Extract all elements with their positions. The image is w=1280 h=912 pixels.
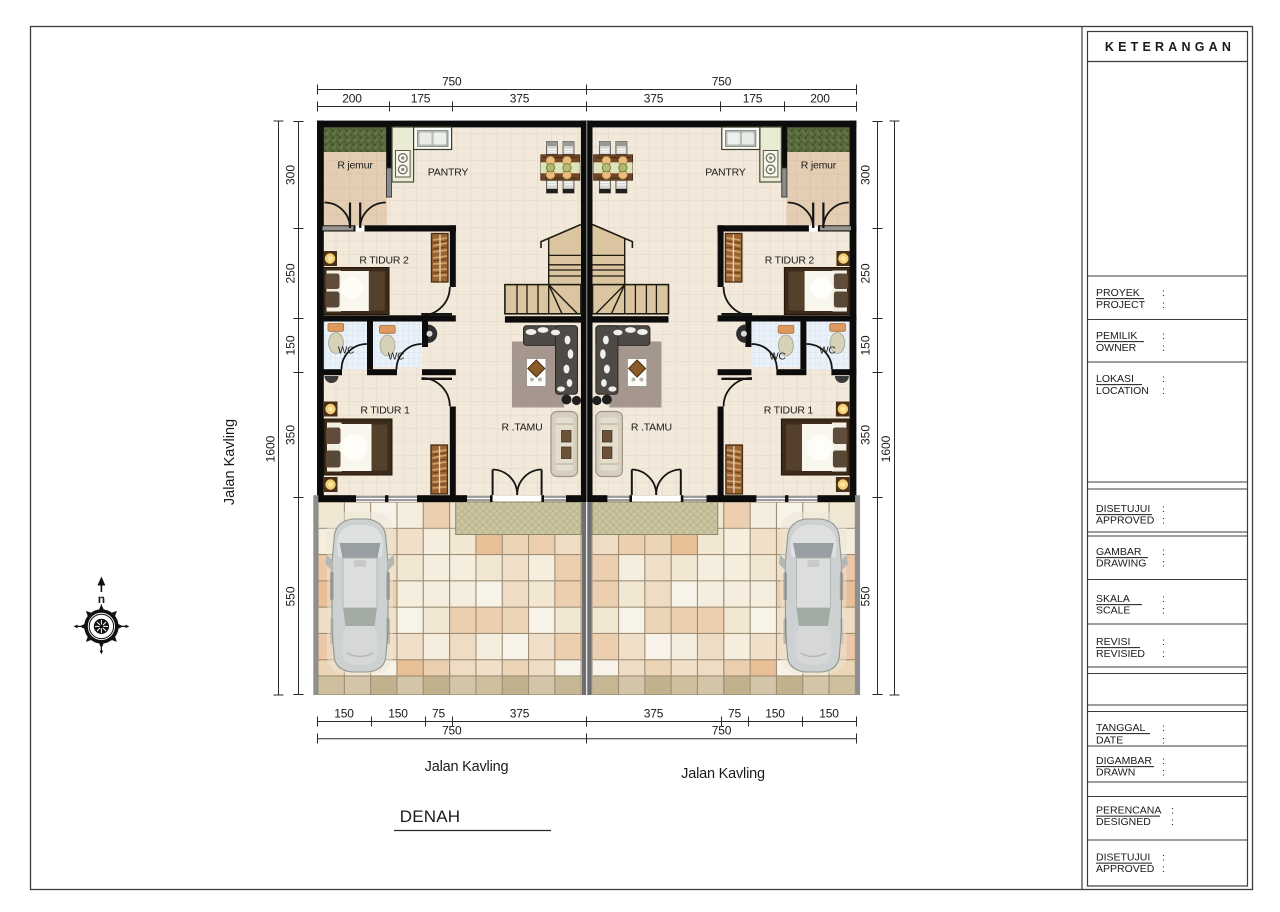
svg-text:DESIGNED: DESIGNED [1096,816,1151,828]
svg-text::: : [1162,722,1165,734]
svg-text::: : [1162,636,1165,648]
svg-text:GAMBAR: GAMBAR [1096,546,1142,558]
svg-text:APPROVED: APPROVED [1096,515,1155,527]
svg-text:PROJECT: PROJECT [1096,299,1146,311]
svg-text:375: 375 [644,92,664,106]
svg-text:DISETUJUI: DISETUJUI [1096,503,1150,515]
svg-text::: : [1162,546,1165,558]
svg-text:150: 150 [765,707,785,721]
svg-text:550: 550 [284,586,298,606]
svg-text:350: 350 [859,425,873,445]
svg-text:SCALE: SCALE [1096,605,1130,617]
svg-text:PERENCANA: PERENCANA [1096,805,1161,817]
svg-text:WC: WC [769,352,785,363]
svg-text::: : [1162,503,1165,515]
svg-text:SKALA: SKALA [1096,593,1130,605]
svg-text::: : [1162,605,1165,617]
svg-text:75: 75 [432,707,445,721]
svg-text:750: 750 [712,75,732,89]
svg-text:DIGAMBAR: DIGAMBAR [1096,755,1152,767]
svg-text::: : [1162,863,1165,875]
svg-text:REVISI: REVISI [1096,636,1130,648]
svg-text:R TIDUR 1: R TIDUR 1 [764,405,814,417]
svg-text:Jalan Kavling: Jalan Kavling [222,419,238,505]
svg-text:300: 300 [284,165,298,185]
svg-text:1600: 1600 [879,435,893,462]
svg-text:n: n [98,592,105,606]
svg-text:WC: WC [388,352,404,363]
svg-text:750: 750 [442,724,462,738]
svg-text:150: 150 [819,707,839,721]
svg-text::: : [1162,558,1165,570]
svg-text:R TIDUR 2: R TIDUR 2 [765,255,815,267]
svg-text:375: 375 [510,707,530,721]
svg-text:175: 175 [743,92,763,106]
svg-text:PANTRY: PANTRY [705,167,746,179]
svg-text:150: 150 [859,335,873,355]
svg-text:R jemur: R jemur [801,160,837,172]
svg-text:TANGGAL: TANGGAL [1096,722,1146,734]
svg-text:550: 550 [859,586,873,606]
svg-text::: : [1162,287,1165,299]
svg-text:750: 750 [712,724,732,738]
svg-text:PEMILIK: PEMILIK [1096,330,1137,342]
svg-text:R .TAMU: R .TAMU [502,422,543,434]
svg-text::: : [1162,385,1165,397]
svg-text::: : [1171,805,1174,817]
svg-text:R TIDUR 1: R TIDUR 1 [360,405,410,417]
svg-text:R jemur: R jemur [337,160,373,172]
svg-text:DISETUJUI: DISETUJUI [1096,852,1150,864]
svg-text:APPROVED: APPROVED [1096,863,1155,875]
svg-text:375: 375 [510,92,530,106]
svg-text:Jalan Kavling: Jalan Kavling [681,766,765,782]
svg-text:LOCATION: LOCATION [1096,385,1149,397]
svg-text::: : [1162,373,1165,385]
svg-text::: : [1171,816,1174,828]
svg-text:250: 250 [859,263,873,283]
svg-text::: : [1162,330,1165,342]
svg-text::: : [1162,593,1165,605]
svg-text::: : [1162,852,1165,864]
svg-text:LOKASI: LOKASI [1096,373,1134,385]
svg-text:1600: 1600 [264,435,278,462]
svg-text:200: 200 [810,92,830,106]
svg-text:OWNER: OWNER [1096,342,1137,354]
svg-text:75: 75 [728,707,741,721]
svg-text::: : [1162,342,1165,354]
svg-text:DENAH: DENAH [400,807,461,826]
svg-text:DATE: DATE [1096,735,1123,747]
svg-text:PANTRY: PANTRY [428,167,469,179]
svg-text:R .TAMU: R .TAMU [631,422,672,434]
svg-text::: : [1162,735,1165,747]
svg-text:PROYEK: PROYEK [1096,287,1140,299]
svg-text:KETERANGAN: KETERANGAN [1105,40,1235,54]
svg-text::: : [1162,515,1165,527]
svg-text:WC: WC [819,346,835,357]
svg-text:DRAWING: DRAWING [1096,558,1146,570]
svg-text:300: 300 [859,165,873,185]
svg-text::: : [1162,648,1165,660]
svg-text::: : [1162,299,1165,311]
svg-text:REVISIED: REVISIED [1096,648,1145,660]
svg-text:WC: WC [338,346,354,357]
svg-text:375: 375 [644,707,664,721]
svg-text::: : [1162,767,1165,779]
svg-text::: : [1162,755,1165,767]
svg-text:150: 150 [388,707,408,721]
svg-text:350: 350 [284,425,298,445]
svg-text:175: 175 [411,92,431,106]
svg-text:R TIDUR 2: R TIDUR 2 [359,255,409,267]
svg-text:200: 200 [342,92,362,106]
svg-text:150: 150 [334,707,354,721]
svg-text:750: 750 [442,75,462,89]
svg-text:Jalan Kavling: Jalan Kavling [425,759,509,775]
svg-text:250: 250 [284,263,298,283]
svg-text:DRAWN: DRAWN [1096,767,1135,779]
svg-text:150: 150 [284,335,298,355]
